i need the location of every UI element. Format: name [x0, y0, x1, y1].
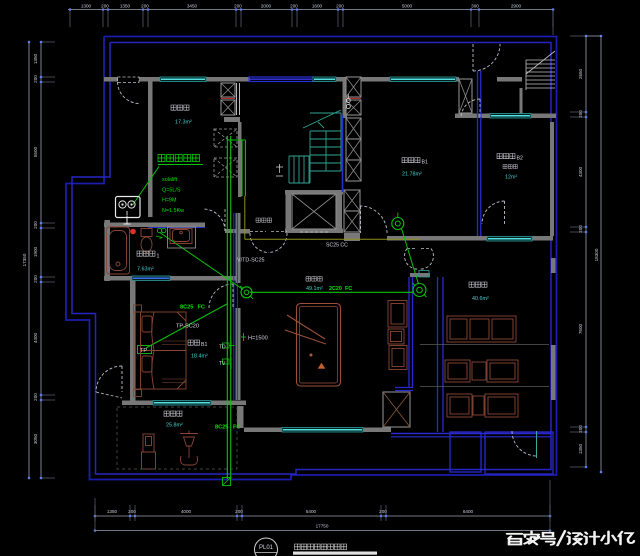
svg-text:300: 300 [471, 4, 479, 9]
svg-text:1900: 1900 [33, 246, 38, 257]
svg-text:4400: 4400 [33, 332, 38, 343]
svg-text:TV: TV [219, 361, 226, 367]
svg-text:200: 200 [33, 393, 38, 401]
svg-text:FC: FC [233, 425, 240, 431]
svg-text:H=9M: H=9M [162, 198, 177, 204]
svg-text:1350: 1350 [107, 509, 118, 514]
svg-text:TD: TD [219, 345, 226, 351]
svg-text:49.1m²: 49.1m² [306, 286, 323, 292]
svg-text:1350: 1350 [33, 53, 38, 64]
svg-text:18.4m²: 18.4m² [191, 354, 208, 360]
svg-text:17.3m²: 17.3m² [175, 120, 192, 126]
svg-text:3450: 3450 [187, 4, 198, 9]
svg-text:200: 200 [578, 225, 583, 233]
svg-text:B1: B1 [201, 342, 207, 348]
svg-text:25.8m²: 25.8m² [166, 423, 183, 429]
svg-text:17750: 17750 [316, 524, 329, 529]
svg-text:PL01: PL01 [259, 545, 274, 551]
svg-text:TP-SC20: TP-SC20 [176, 324, 199, 330]
svg-text:2650: 2650 [578, 68, 583, 79]
svg-text:4000: 4000 [181, 509, 192, 514]
svg-text:FC: FC [345, 286, 352, 292]
svg-text:21.78m²: 21.78m² [402, 172, 422, 178]
svg-text:8C25: 8C25 [215, 425, 228, 431]
svg-text:2000: 2000 [261, 4, 272, 9]
svg-text:200: 200 [578, 425, 583, 433]
svg-text:200: 200 [336, 4, 344, 9]
svg-text:18300: 18300 [594, 248, 599, 261]
svg-text:200: 200 [234, 4, 242, 9]
svg-text:40.6m²: 40.6m² [472, 296, 489, 302]
svg-text:1350: 1350 [120, 4, 131, 9]
svg-text:Q=5L/S: Q=5L/S [162, 188, 181, 194]
svg-text:8C25: 8C25 [180, 305, 193, 311]
svg-text:7.63m²: 7.63m² [137, 267, 154, 273]
svg-text:B2: B2 [517, 155, 523, 161]
svg-text:TP: TP [140, 348, 147, 354]
svg-text:1350: 1350 [578, 443, 583, 454]
svg-text:200: 200 [101, 4, 109, 9]
svg-text:1600: 1600 [312, 4, 323, 9]
svg-text:solalift: solalift [162, 177, 178, 183]
svg-text:200: 200 [235, 509, 243, 514]
svg-text:H=1500: H=1500 [248, 336, 268, 342]
svg-text:5000: 5000 [402, 4, 413, 9]
svg-text:2900: 2900 [511, 4, 522, 9]
svg-text:3050: 3050 [33, 433, 38, 444]
svg-text:5400: 5400 [306, 509, 317, 514]
svg-text:200: 200 [33, 221, 38, 229]
svg-text:2C20: 2C20 [329, 286, 342, 292]
svg-text:200: 200 [33, 75, 38, 83]
svg-text:FC: FC [198, 305, 205, 311]
svg-text:200: 200 [578, 110, 583, 118]
svg-text:4300: 4300 [578, 166, 583, 177]
svg-text:200: 200 [379, 509, 387, 514]
svg-text:1: 1 [157, 254, 160, 260]
svg-text:N=1.5Kw: N=1.5Kw [162, 208, 184, 214]
svg-text:B1: B1 [422, 159, 428, 165]
svg-text:200: 200 [128, 509, 136, 514]
svg-text:6400: 6400 [463, 509, 474, 514]
svg-text:12m²: 12m² [505, 175, 517, 181]
svg-text:1300: 1300 [81, 4, 92, 9]
svg-text:V/TD-SC25: V/TD-SC25 [237, 258, 265, 264]
svg-text:5500: 5500 [33, 146, 38, 157]
svg-text:200: 200 [33, 275, 38, 283]
svg-text:200: 200 [141, 4, 149, 9]
svg-text:SC25 CC: SC25 CC [326, 243, 348, 249]
svg-text:7600: 7600 [578, 323, 583, 334]
svg-text:200: 200 [290, 4, 298, 9]
svg-text:17350: 17350 [22, 253, 27, 266]
